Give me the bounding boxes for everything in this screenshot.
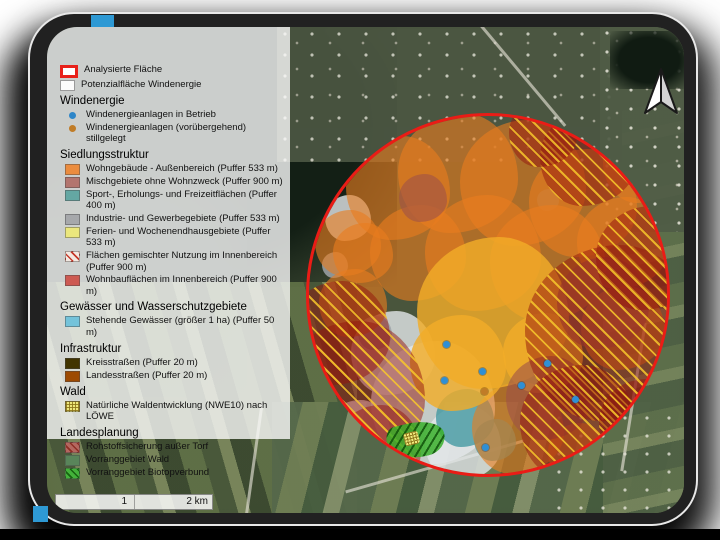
dot-blue-swatch xyxy=(69,112,76,119)
residential-buffer-region xyxy=(315,210,381,276)
legend-analyzed-area: Analysierte Fläche xyxy=(60,64,283,78)
residential-outer-swatch xyxy=(65,164,80,175)
wind-turbine-active-marker xyxy=(544,360,551,367)
legend-item-label: Potenzialfläche Windenergie xyxy=(81,79,283,91)
legend-section-title: Gewässer und Wasserschutzgebiete xyxy=(60,301,283,313)
sport-leisure-swatch xyxy=(65,190,80,201)
wind-turbine-active-marker xyxy=(572,396,579,403)
legend-item-label: Kreisstraßen (Puffer 20 m) xyxy=(86,357,283,369)
mixed-no-residential-swatch xyxy=(65,177,80,188)
legend-item-label: Wohngebäude - Außenbereich (Puffer 533 m… xyxy=(86,163,283,175)
legend-item-label: Landesstraßen (Puffer 20 m) xyxy=(86,370,283,382)
raw-materials-swatch xyxy=(65,442,80,453)
legend-sport-leisure: Sport-, Erholungs- und Freizeitflächen (… xyxy=(60,189,283,212)
wind-turbine-active-marker xyxy=(482,444,489,451)
legend-holiday-homes: Ferien- und Wochenendhausgebiete (Puffer… xyxy=(60,226,283,249)
scale-bar-end-label: 2 km xyxy=(186,496,208,507)
dot-orange-swatch xyxy=(69,125,76,132)
mixed-use-inner-swatch xyxy=(65,251,80,262)
analyzed-area-swatch xyxy=(60,65,78,78)
legend-section-title: Infrastruktur xyxy=(60,343,283,355)
wind-turbine-active-marker xyxy=(518,382,525,389)
legend-section-title: Landesplanung xyxy=(60,427,283,439)
priority-biotope-swatch xyxy=(65,468,80,479)
legend-priority-forest: Vorranggebiet Wald xyxy=(60,454,283,466)
legend-item-label: Industrie- und Gewerbegebiete (Puffer 53… xyxy=(86,213,283,225)
county-roads-swatch xyxy=(65,358,80,369)
holiday-homes-swatch xyxy=(65,227,80,238)
scale-bar: 1 2 km xyxy=(55,494,213,510)
legend-mixed-no-residential: Mischgebiete ohne Wohnzweck (Puffer 900 … xyxy=(60,176,283,188)
legend-item-label: Mischgebiete ohne Wohnzweck (Puffer 900 … xyxy=(86,176,283,188)
legend-natural-forest: Natürliche Waldentwicklung (NWE10) nach … xyxy=(60,400,283,423)
priority-forest-swatch xyxy=(65,455,80,466)
legend-residential-inner: Wohnbauflächen im Innenbereich (Puffer 9… xyxy=(60,274,283,297)
blue-artifact-bottom xyxy=(33,506,48,522)
scale-bar-tick xyxy=(134,495,135,509)
potential-area-swatch xyxy=(60,80,75,91)
legend-item-label: Windenergieanlagen in Betrieb xyxy=(86,109,283,121)
legend-turbine-idle: Windenergieanlagen (vorübergehend) still… xyxy=(60,122,283,145)
wind-turbine-active-marker xyxy=(443,341,450,348)
legend-standing-water: Stehende Gewässer (größer 1 ha) (Puffer … xyxy=(60,315,283,338)
legend-item-label: Natürliche Waldentwicklung (NWE10) nach … xyxy=(86,400,283,423)
legend-mixed-use-inner: Flächen gemischter Nutzung im Innenberei… xyxy=(60,250,283,273)
legend-item-label: Windenergieanlagen (vorübergehend) still… xyxy=(86,122,283,145)
legend-item-label: Flächen gemischter Nutzung im Innenberei… xyxy=(86,250,283,273)
legend-residential-outer: Wohngebäude - Außenbereich (Puffer 533 m… xyxy=(60,163,283,175)
device-frame: Analysierte FlächePotenzialfläche Winden… xyxy=(28,12,698,526)
letterbox-bar xyxy=(0,529,720,540)
legend-item-label: Wohnbauflächen im Innenbereich (Puffer 9… xyxy=(86,274,283,297)
legend-item-label: Vorranggebiet Wald xyxy=(86,454,283,466)
legend-panel: Analysierte FlächePotenzialfläche Winden… xyxy=(47,27,290,439)
legend-raw-materials: Rohstoffsicherung außer Torf xyxy=(60,441,283,453)
map-canvas[interactable]: Analysierte FlächePotenzialfläche Winden… xyxy=(47,27,684,513)
legend-item-label: Vorranggebiet Biotopverbund xyxy=(86,467,283,479)
blue-artifact-top xyxy=(91,15,114,27)
page-background: Analysierte FlächePotenzialfläche Winden… xyxy=(0,0,720,540)
state-roads-swatch xyxy=(65,371,80,382)
legend-section-title: Wald xyxy=(60,386,283,398)
legend-industry: Industrie- und Gewerbegebiete (Puffer 53… xyxy=(60,213,283,225)
legend-county-roads: Kreisstraßen (Puffer 20 m) xyxy=(60,357,283,369)
north-arrow-icon xyxy=(643,67,679,115)
legend-turbine-active: Windenergieanlagen in Betrieb xyxy=(60,109,283,121)
legend-potential-area: Potenzialfläche Windenergie xyxy=(60,79,283,91)
legend-item-label: Ferien- und Wochenendhausgebiete (Puffer… xyxy=(86,226,283,249)
natural-forest-swatch xyxy=(65,401,80,412)
wind-turbine-idle-marker xyxy=(481,388,488,395)
legend-item-label: Stehende Gewässer (größer 1 ha) (Puffer … xyxy=(86,315,283,338)
legend-item-label: Rohstoffsicherung außer Torf xyxy=(86,441,283,453)
wind-turbine-active-marker xyxy=(441,377,448,384)
legend-item-label: Analysierte Fläche xyxy=(84,64,283,76)
legend-item-label: Sport-, Erholungs- und Freizeitflächen (… xyxy=(86,189,283,212)
residential-inner-swatch xyxy=(65,275,80,286)
analysis-circle xyxy=(306,113,670,477)
industry-swatch xyxy=(65,214,80,225)
legend-state-roads: Landesstraßen (Puffer 20 m) xyxy=(60,370,283,382)
scale-bar-mid-label: 1 xyxy=(122,496,128,507)
standing-water-swatch xyxy=(65,316,80,327)
legend-section-title: Siedlungsstruktur xyxy=(60,149,283,161)
legend-priority-biotope: Vorranggebiet Biotopverbund xyxy=(60,467,283,479)
legend-section-title: Windenergie xyxy=(60,95,283,107)
mixed-area-region xyxy=(399,174,447,222)
wind-turbine-active-marker xyxy=(479,368,486,375)
